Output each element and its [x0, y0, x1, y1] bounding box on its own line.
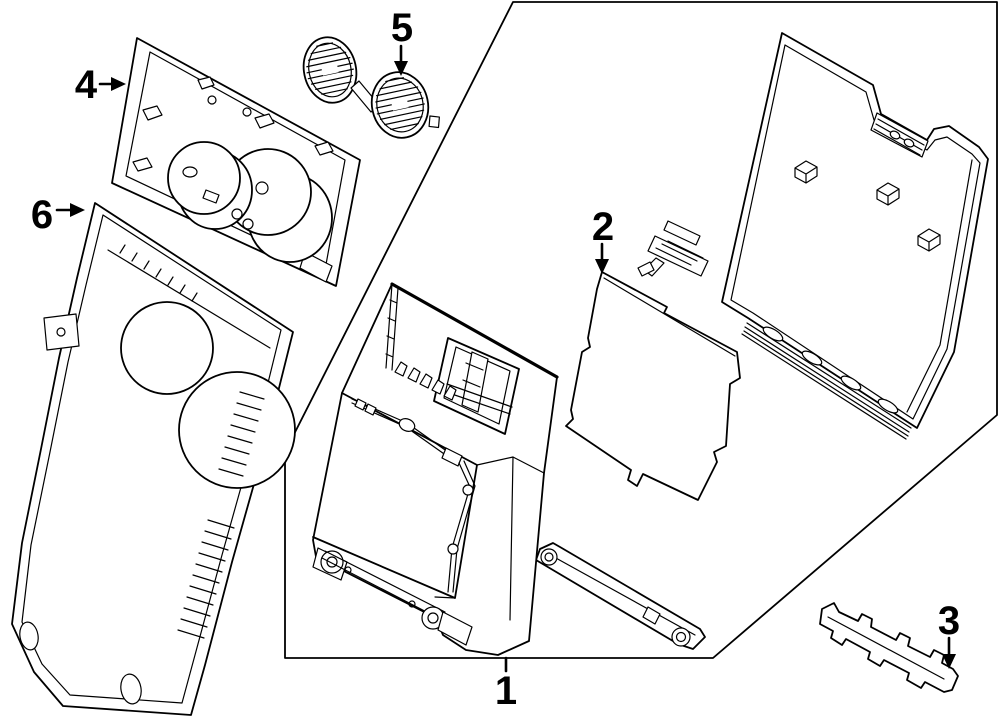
part5-grilles	[298, 32, 442, 143]
grille-left	[298, 32, 363, 107]
callout-4-arrowhead	[111, 77, 126, 91]
large-back-panel	[722, 33, 988, 439]
callout-3-label: 3	[938, 599, 960, 643]
callout-5-label: 5	[391, 6, 413, 50]
part1-housing	[313, 284, 557, 655]
diagram-canvas: 1 2 3 4 5 6	[0, 0, 1000, 728]
callout-5: 5	[391, 6, 413, 76]
callout-4: 4	[75, 63, 126, 107]
grille-right	[366, 65, 442, 143]
part1-mounting-rail	[536, 543, 705, 649]
callout-2: 2	[592, 205, 614, 274]
callout-4-label: 4	[75, 63, 98, 107]
exploded-parts-diagram: 1 2 3 4 5 6	[0, 0, 1000, 728]
callout-6-arrowhead	[70, 203, 85, 217]
callout-1-label: 1	[495, 669, 517, 713]
callout-6-label: 6	[31, 193, 53, 237]
part2-back-panel	[566, 272, 740, 500]
callout-1: 1	[495, 658, 517, 713]
callout-6: 6	[31, 193, 85, 237]
part6-trim-panel	[12, 203, 295, 715]
callout-2-label: 2	[592, 205, 614, 249]
part2-retainer-clip	[638, 221, 708, 276]
callout-2-arrowhead	[595, 259, 609, 274]
